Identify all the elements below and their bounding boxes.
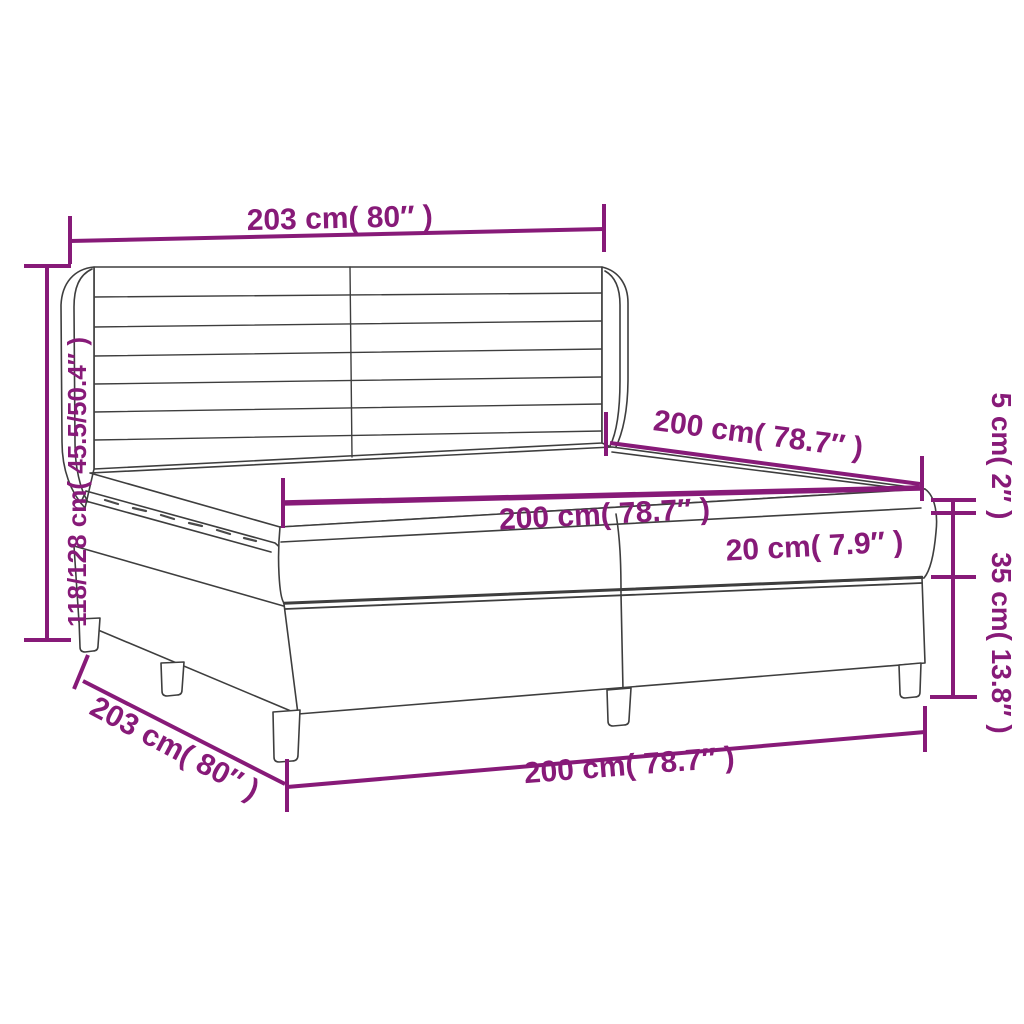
bed-dimension-drawing: 203 cm( 80″ ) 118/128 cm( 45.5/50.4″ ) 2… [0,0,1024,1024]
dim-label-bed-length-bottom: 200 cm( 78.7″ ) [523,741,736,790]
bed-leg [899,663,921,698]
dim-label-base-height: 35 cm( 13.8″ ) [986,552,1017,734]
bed-leg [161,662,184,696]
dim-label-headboard-width: 203 cm( 80″ ) [246,200,433,237]
bed-leg [273,710,300,762]
dim-bed-length-bottom: 200 cm( 78.7″ ) [287,706,925,812]
dim-headboard-width: 203 cm( 80″ ) [70,200,604,264]
dim-label-width-diagonal: 203 cm( 80″ ) [85,690,265,807]
dim-label-total-height: 118/128 cm( 45.5/50.4″ ) [62,337,92,627]
bed-leg [607,688,631,726]
dim-label-topper-height: 5 cm( 2″ ) [986,392,1017,519]
base-left-panel [74,546,298,714]
dimension-diagram: 203 cm( 80″ ) 118/128 cm( 45.5/50.4″ ) 2… [0,0,1024,1024]
dim-height-scale: 5 cm( 2″ ) 35 cm( 13.8″ ) [930,392,1017,733]
